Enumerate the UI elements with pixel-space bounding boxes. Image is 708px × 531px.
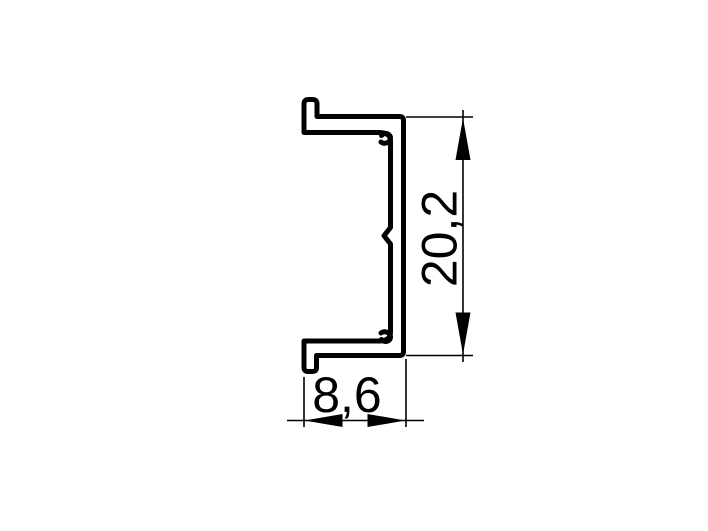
inner-corner-bead-top bbox=[381, 133, 391, 143]
inner-corner-bead-bottom bbox=[381, 332, 391, 342]
width-dimension-label: 8,6 bbox=[312, 367, 382, 423]
profile-drawing: 20,2 8,6 bbox=[0, 0, 708, 531]
profile-outline-group bbox=[304, 100, 404, 372]
arrowhead-up-icon bbox=[456, 118, 471, 160]
height-dimension-label: 20,2 bbox=[412, 190, 468, 287]
drawing-canvas: 20,2 8,6 bbox=[0, 0, 708, 531]
height-dimension: 20,2 bbox=[406, 110, 473, 362]
arrowhead-down-icon bbox=[456, 313, 471, 355]
